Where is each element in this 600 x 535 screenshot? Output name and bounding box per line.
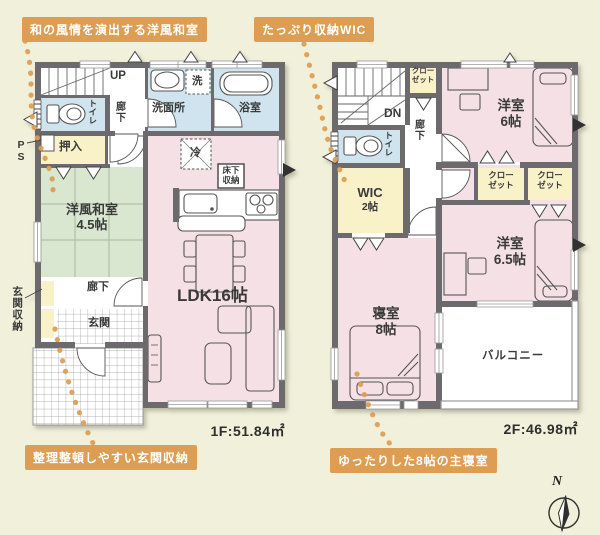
room-genkan-storage-upper [41, 281, 54, 306]
label-closet-a: クロー ゼット [478, 171, 524, 191]
label-hall-closet-line2: ゼット [408, 76, 438, 85]
room-genkan-storage-lower [41, 309, 54, 338]
label-bedroom-line2: 8帖 [361, 322, 411, 338]
label-closet-b-line2: ゼット [528, 181, 572, 191]
area-label-2f: 2F:46.98㎡ [458, 419, 578, 439]
label-washitsu-line1: 洋風和室 [52, 203, 132, 218]
compass-icon [547, 494, 581, 533]
vent-arrow-right-icon [573, 238, 586, 252]
label-washroom: 洗面所 [152, 102, 185, 115]
label-hall-upper-1f: 廊下 [113, 101, 125, 123]
label-underfloor-storage: 床下 収納 [218, 166, 244, 186]
label-pipe-space: PS [15, 139, 27, 163]
label-underfloor-line2: 収納 [218, 176, 244, 186]
label-toilet-2f: トイレ [383, 131, 393, 157]
compass-north-label: N [552, 474, 562, 490]
balcony-rail-bottom [441, 401, 578, 409]
label-bathroom: 浴室 [239, 102, 261, 115]
label-entrance-storage: 玄関収納 [11, 286, 23, 332]
label-oshiire: 押入 [59, 141, 82, 154]
toilet-icon-1f [47, 104, 85, 124]
vent-arrow-right-icon [283, 163, 296, 177]
label-room6-line1: 洋室 [486, 98, 536, 114]
label-wic-line1: WIC [345, 186, 395, 201]
label-room65-line2: 6.5帖 [482, 252, 538, 268]
vent-arrow-left-icon [24, 112, 37, 127]
label-room65-line1: 洋室 [482, 236, 538, 252]
label-wic-line2: 2帖 [345, 201, 395, 213]
callout-wic: たっぷり収納WIC [254, 17, 374, 42]
callout-master-bedroom: ゆったりした8帖の主寝室 [330, 448, 497, 473]
vent-arrow-left-icon [324, 76, 337, 90]
label-dn: DN [384, 107, 401, 121]
label-entrance: 玄関 [88, 317, 110, 330]
callout-genkan-storage: 整理整頓しやすい玄関収納 [25, 445, 197, 470]
sink-icon [151, 70, 184, 91]
label-ldk: LDK16帖 [177, 286, 248, 306]
label-fridge: 冷 [190, 147, 201, 160]
label-bedroom-line1: 寝室 [361, 306, 411, 322]
label-hall-2f: 廊下 [412, 119, 424, 141]
area-label-1f: 1F:51.84㎡ [165, 421, 285, 441]
vent-arrow-right-icon [573, 118, 586, 132]
label-washitsu-line2: 4.5帖 [52, 218, 132, 233]
label-closet-b: クロー ゼット [528, 171, 572, 191]
plan-2f [323, 53, 586, 409]
label-room6: 洋室 6帖 [486, 98, 536, 129]
floorplan-image: 和の風情を演出する洋風和室 たっぷり収納WIC 整理整頓しやすい玄関収納 ゆった… [0, 0, 600, 535]
label-wic: WIC 2帖 [345, 186, 395, 213]
bathtub-icon [220, 72, 272, 95]
label-toilet-1f: トイレ [87, 99, 97, 125]
balcony-rail-right [572, 301, 578, 409]
callout-washitsu: 和の風情を演出する洋風和室 [22, 17, 207, 42]
label-up: UP [110, 70, 126, 83]
toilet-icon-2f [344, 136, 382, 156]
label-closet-a-line2: ゼット [478, 181, 524, 191]
label-washitsu: 洋風和室 4.5帖 [52, 203, 132, 233]
vent-triangle-icon [233, 52, 247, 63]
label-bedroom: 寝室 8帖 [361, 306, 411, 337]
vent-triangle-icon [128, 52, 142, 63]
label-room65: 洋室 6.5帖 [482, 236, 538, 267]
label-hall-closet: クロー ゼット [408, 67, 438, 84]
label-balcony: バルコニー [482, 350, 544, 363]
vent-triangle-icon [504, 53, 516, 62]
label-laundry: 洗 [192, 75, 203, 87]
room-ldk [148, 134, 279, 402]
label-room6-line2: 6帖 [486, 114, 536, 130]
vent-triangle-icon [184, 52, 198, 63]
label-hall-lower-1f: 廊下 [87, 281, 109, 294]
